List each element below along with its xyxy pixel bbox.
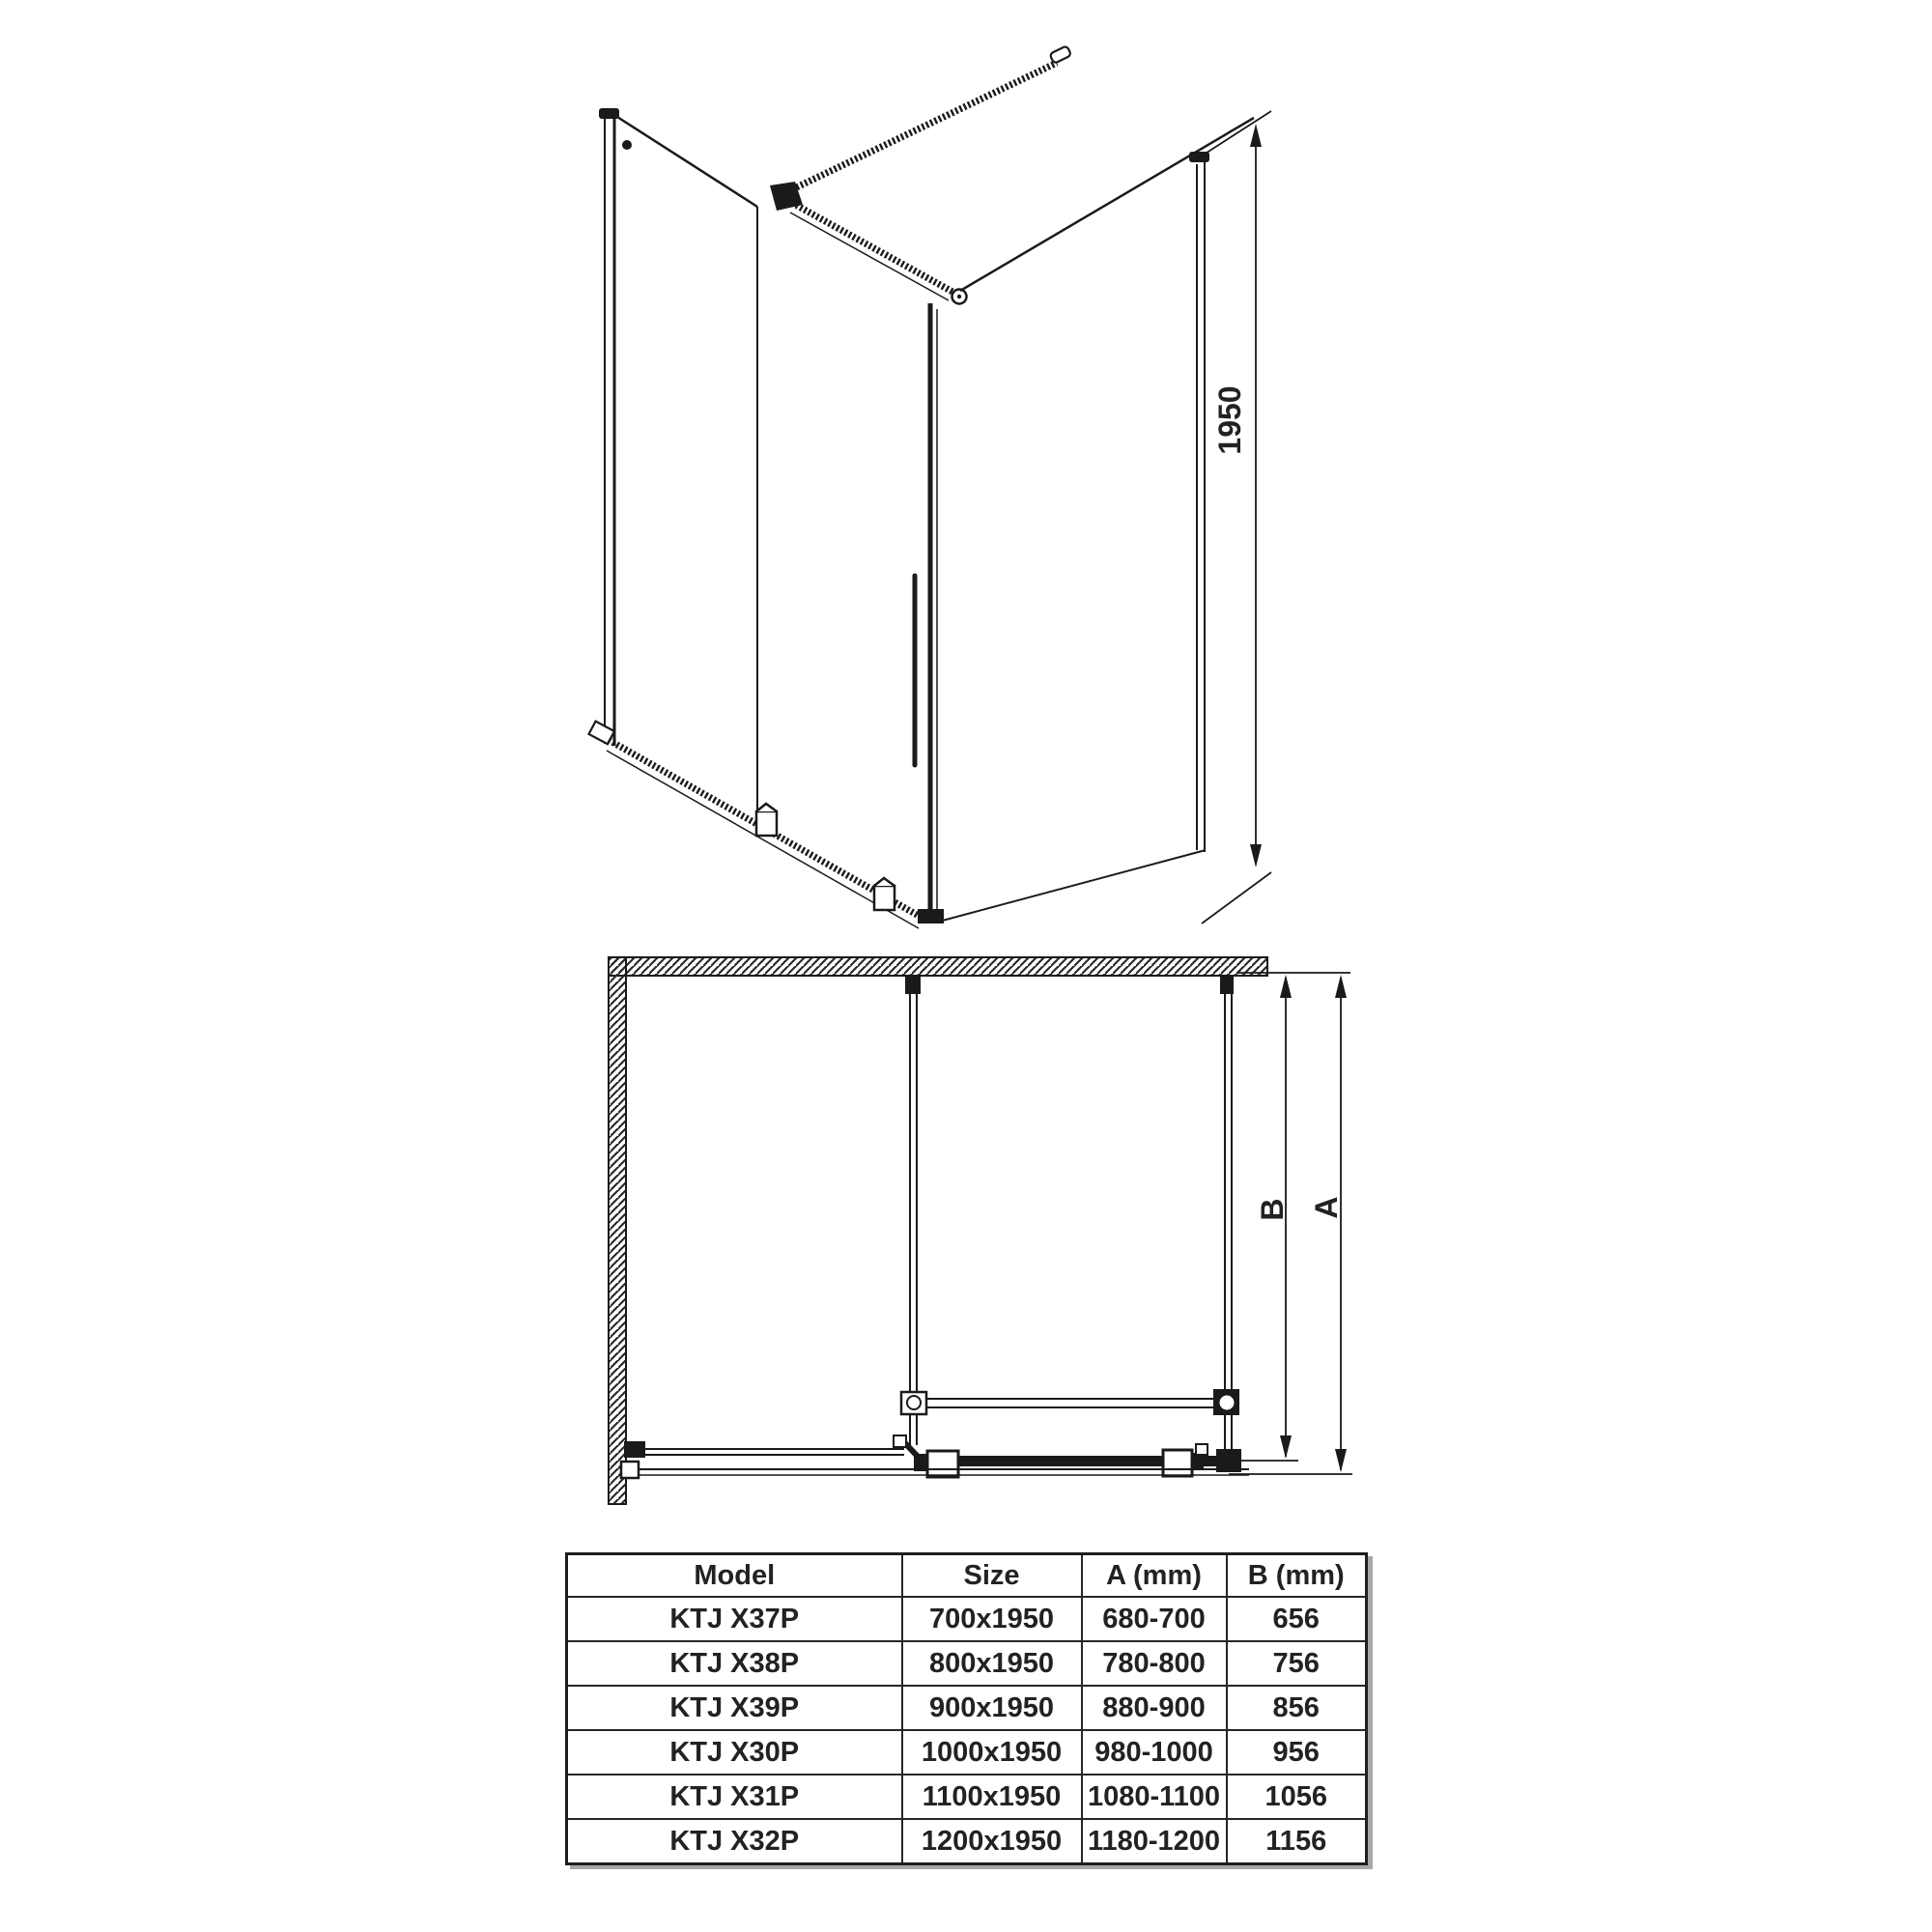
table-cell: 1156 [1227, 1819, 1367, 1864]
column-header: B (mm) [1227, 1554, 1367, 1598]
table-cell: 1056 [1227, 1775, 1367, 1819]
table-cell: 800x1950 [902, 1641, 1082, 1686]
plan-roller [927, 1451, 958, 1477]
table-cell: 980-1000 [1082, 1730, 1227, 1775]
table-cell: KTJ X39P [567, 1686, 902, 1730]
dimension-1950: 1950 [1201, 111, 1271, 923]
table-cell: 1100x1950 [902, 1775, 1082, 1819]
table-cell: 680-700 [1082, 1597, 1227, 1641]
height-dim-label: 1950 [1212, 385, 1247, 454]
table-cell: 700x1950 [902, 1597, 1082, 1641]
spec-table: ModelSizeA (mm)B (mm) KTJ X37P700x195068… [565, 1552, 1368, 1865]
bottom-rail [607, 740, 925, 928]
plan-side-panel [1220, 976, 1234, 1461]
table-cell: KTJ X30P [567, 1730, 902, 1775]
wall-profile [589, 108, 632, 746]
table-cell: KTJ X32P [567, 1819, 902, 1864]
column-header: Size [902, 1554, 1082, 1598]
plan-view: B A [609, 957, 1352, 1504]
table-header-row: ModelSizeA (mm)B (mm) [567, 1554, 1367, 1598]
table-cell: 1200x1950 [902, 1819, 1082, 1864]
table-row: KTJ X37P700x1950680-700656 [567, 1597, 1367, 1641]
wall-left [609, 957, 626, 1504]
plan-dim-b-label: B [1255, 1198, 1290, 1220]
table-cell: 780-800 [1082, 1641, 1227, 1686]
side-panel-glass [617, 117, 757, 810]
table-cell: KTJ X31P [567, 1775, 902, 1819]
dimension-a: A [1229, 975, 1352, 1474]
plan-support-bar [901, 1389, 1239, 1415]
wall-top [609, 957, 1267, 976]
table-cell: 1180-1200 [1082, 1819, 1227, 1864]
door-panel [918, 303, 944, 923]
table-cell: KTJ X37P [567, 1597, 902, 1641]
front-top-bar [790, 203, 967, 304]
plan-dim-a-label: A [1309, 1196, 1344, 1218]
table-cell: 1080-1100 [1082, 1775, 1227, 1819]
3d-view: 1950 [589, 45, 1271, 928]
table-row: KTJ X38P800x1950780-800756 [567, 1641, 1367, 1686]
plan-door-tracks [621, 1441, 1249, 1478]
right-panel-glass [935, 118, 1254, 923]
roller-bracket [756, 804, 777, 836]
table-cell: KTJ X38P [567, 1641, 902, 1686]
plan-roller [1163, 1450, 1192, 1476]
table-cell: 1000x1950 [902, 1730, 1082, 1775]
table-cell: 956 [1227, 1730, 1367, 1775]
table-row: KTJ X39P900x1950880-900856 [567, 1686, 1367, 1730]
table-row: KTJ X30P1000x1950980-1000956 [567, 1730, 1367, 1775]
wall-support-bar [770, 45, 1071, 211]
spec-sheet-page: 1950 [0, 0, 1932, 1932]
column-header: A (mm) [1082, 1554, 1227, 1598]
roller-bracket [874, 878, 895, 910]
table-cell: 880-900 [1082, 1686, 1227, 1730]
table-cell: 900x1950 [902, 1686, 1082, 1730]
table-cell: 656 [1227, 1597, 1367, 1641]
table-cell: 856 [1227, 1686, 1367, 1730]
plan-fixed-panel [905, 976, 921, 1445]
table-cell: 756 [1227, 1641, 1367, 1686]
column-header: Model [567, 1554, 902, 1598]
table-row: KTJ X31P1100x19501080-11001056 [567, 1775, 1367, 1819]
table-row: KTJ X32P1200x19501180-12001156 [567, 1819, 1367, 1864]
